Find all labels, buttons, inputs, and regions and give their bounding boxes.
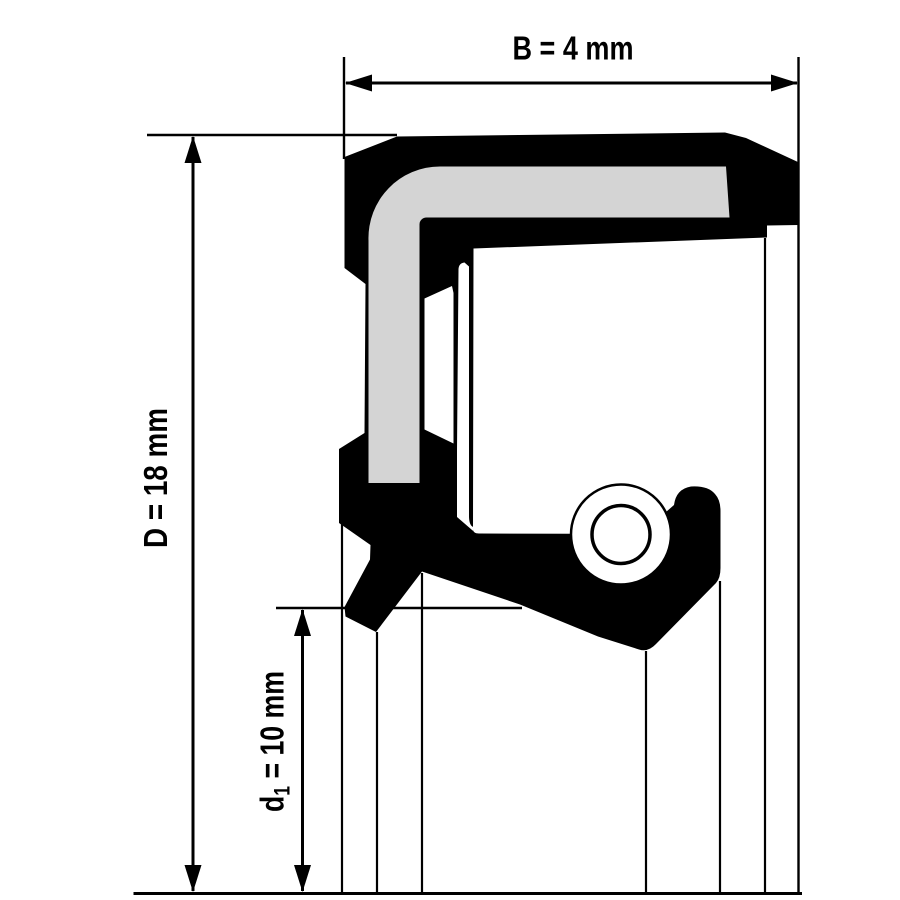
svg-text:D = 18 mm: D = 18 mm xyxy=(138,408,175,548)
svg-text:B = 4 mm: B = 4 mm xyxy=(513,31,634,68)
